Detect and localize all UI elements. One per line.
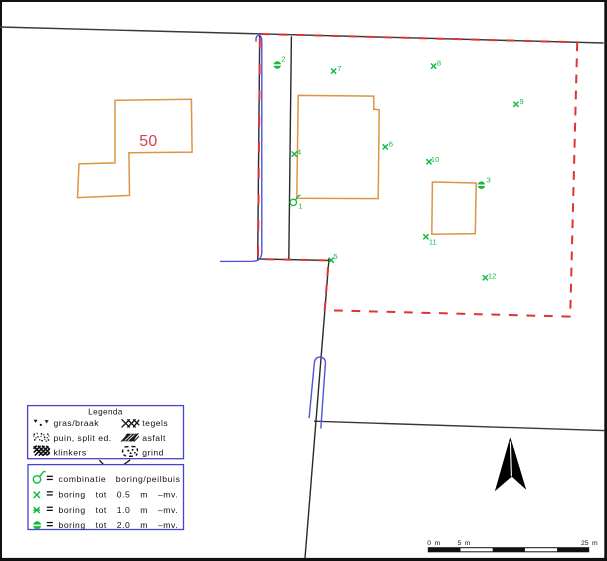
svg-text:3: 3: [487, 175, 491, 184]
svg-text:combinatie boring/peilbuis: combinatie boring/peilbuis: [59, 474, 181, 484]
svg-text:gras/braak: gras/braak: [54, 418, 100, 428]
svg-text:4: 4: [297, 148, 301, 157]
svg-text:Legenda: Legenda: [88, 408, 123, 417]
svg-text:5 m: 5 m: [458, 540, 471, 547]
svg-text:0 m: 0 m: [427, 540, 440, 547]
svg-text:5: 5: [333, 252, 337, 261]
svg-text:10: 10: [431, 155, 439, 164]
svg-text:boring tot 0.5 m –mv.: boring tot 0.5 m –mv.: [59, 489, 179, 499]
svg-text:8: 8: [437, 59, 441, 68]
svg-text:12: 12: [488, 271, 496, 280]
svg-text:2: 2: [281, 54, 285, 63]
svg-text:tegels: tegels: [142, 418, 168, 428]
svg-text:11: 11: [429, 237, 437, 246]
svg-text:boring tot 1.0 m –mv.: boring tot 1.0 m –mv.: [59, 505, 179, 515]
svg-text:6: 6: [389, 140, 393, 149]
svg-text:boring tot 2.0 m –mv.: boring tot 2.0 m –mv.: [59, 520, 179, 530]
svg-text:klinkers: klinkers: [54, 447, 87, 457]
svg-text:9: 9: [520, 97, 524, 106]
svg-text:puin, split ed.: puin, split ed.: [54, 433, 112, 443]
svg-text:asfalt: asfalt: [142, 433, 166, 443]
svg-text:grind: grind: [142, 447, 164, 457]
svg-text:25 m: 25 m: [581, 540, 598, 547]
svg-text:1: 1: [298, 202, 302, 211]
svg-text:7: 7: [337, 64, 341, 73]
svg-text:50: 50: [139, 133, 157, 150]
